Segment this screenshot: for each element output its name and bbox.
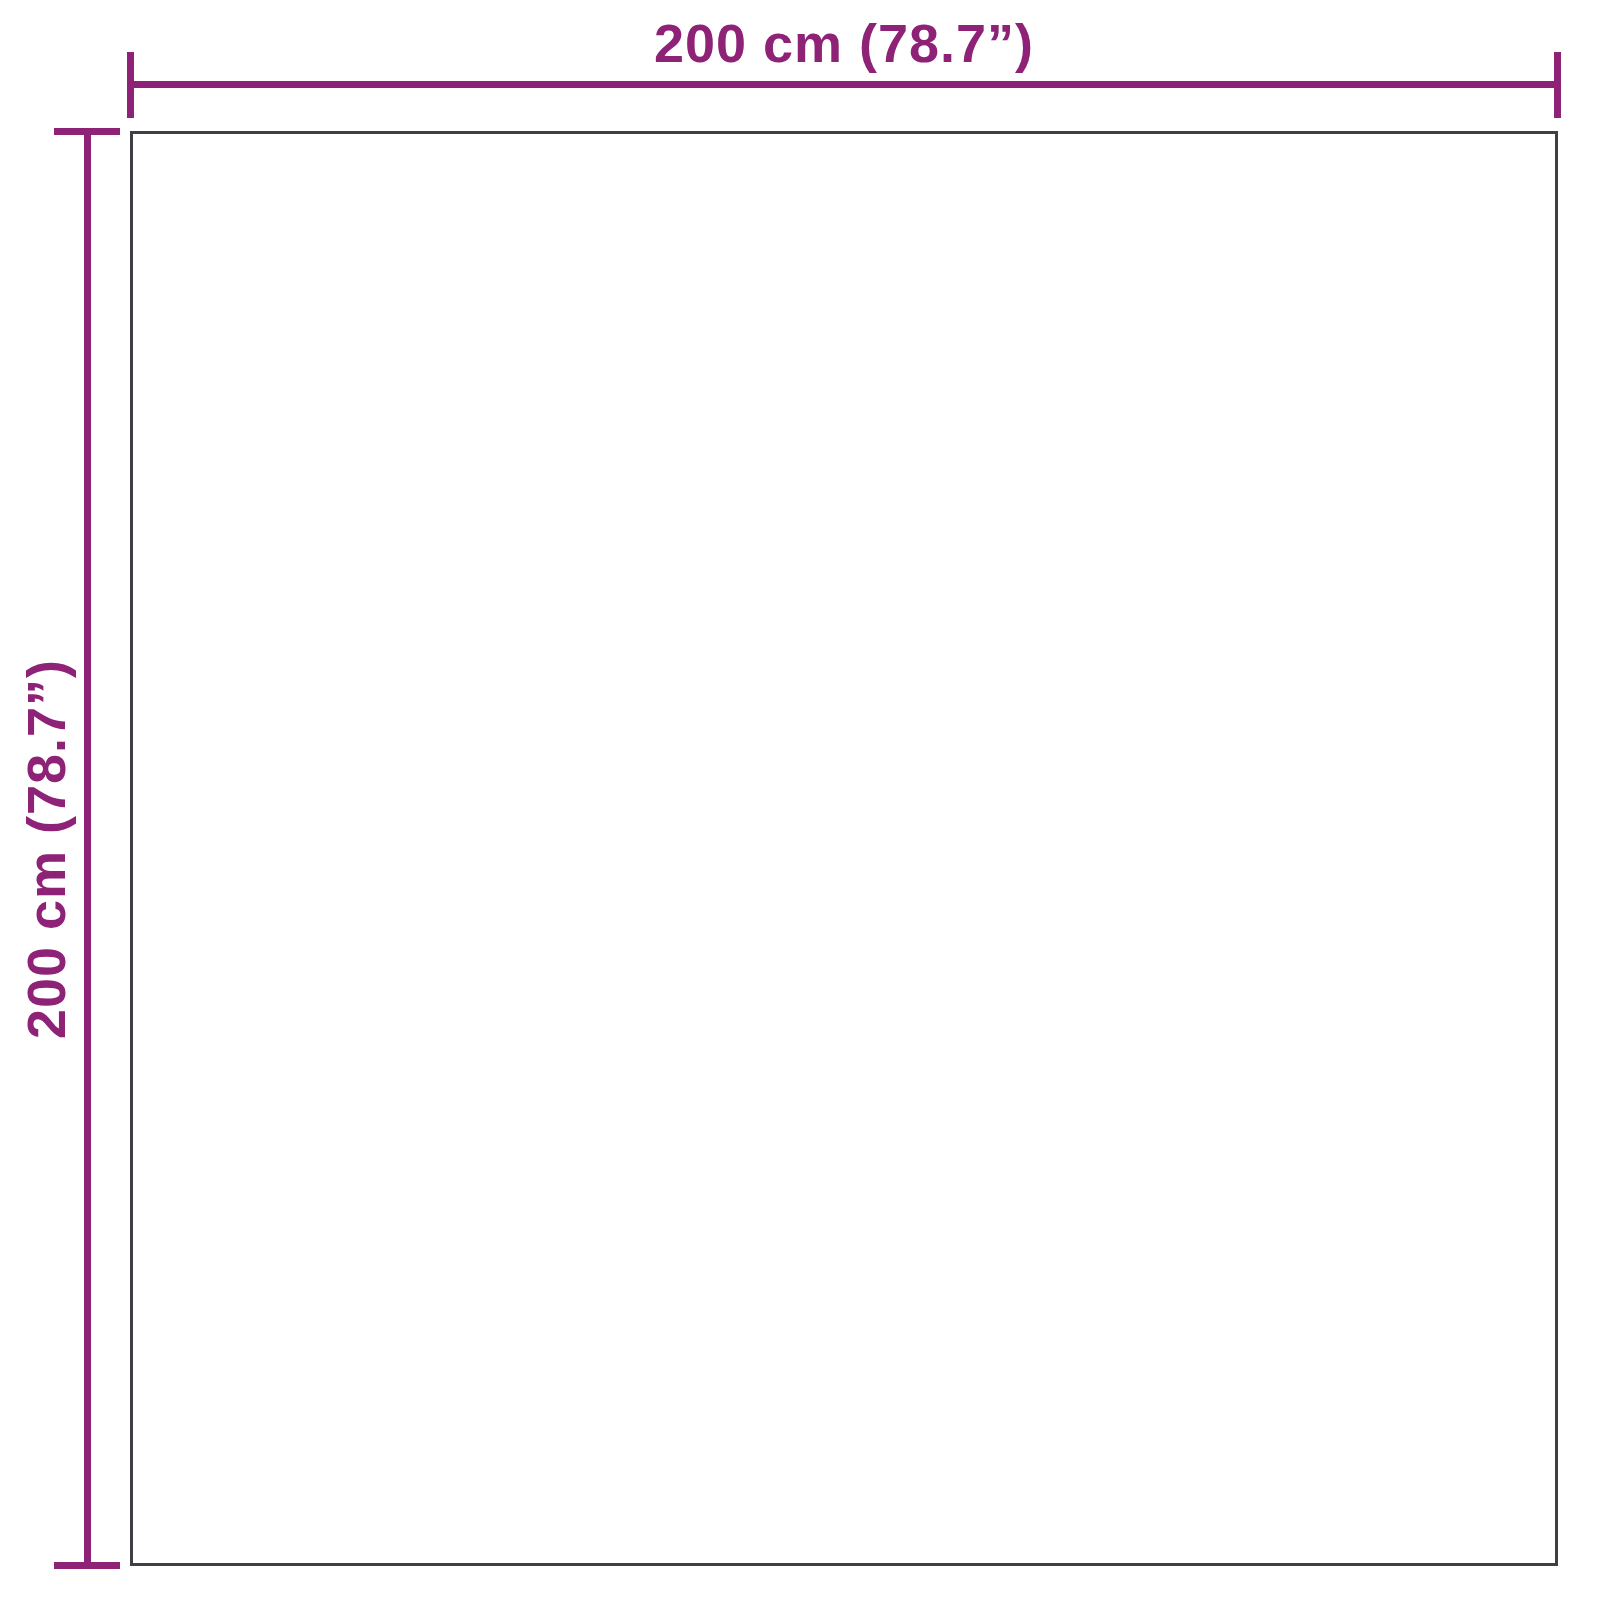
width-dimension-label: 200 cm (78.7”) — [130, 14, 1558, 72]
width-dimension-end-tick-left — [127, 52, 134, 118]
height-dimension-label: 200 cm (78.7”) — [15, 658, 77, 1038]
dimension-diagram: 200 cm (78.7”) 200 cm (78.7”) — [0, 0, 1600, 1600]
width-dimension-line — [130, 81, 1558, 88]
product-outline-square — [130, 131, 1558, 1566]
width-dimension-end-tick-right — [1554, 52, 1561, 118]
height-dimension-label-area: 200 cm (78.7”) — [0, 131, 92, 1566]
